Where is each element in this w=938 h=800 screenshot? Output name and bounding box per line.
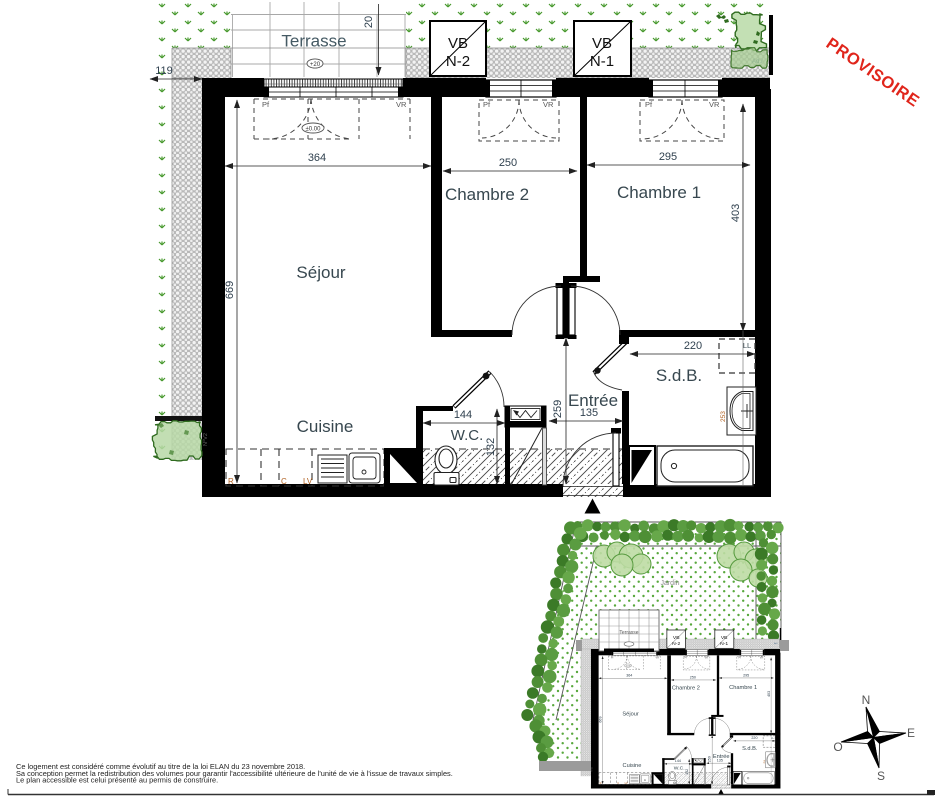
- svg-text:N°V2: N°V2: [203, 433, 209, 446]
- svg-text:Pf: Pf: [645, 100, 653, 109]
- svg-text:O: O: [833, 740, 842, 754]
- svg-text:VR: VR: [709, 100, 720, 109]
- svg-text:Pf: Pf: [483, 100, 491, 109]
- svg-text:Pf: Pf: [262, 100, 270, 109]
- svg-text:135: 135: [580, 407, 598, 419]
- svg-text:20: 20: [363, 16, 375, 28]
- svg-text:364: 364: [308, 152, 326, 164]
- svg-text:N: N: [862, 693, 871, 707]
- svg-text:669: 669: [224, 281, 236, 299]
- svg-text:403: 403: [730, 204, 742, 222]
- svg-text:±0.00: ±0.00: [306, 126, 322, 132]
- svg-text:Séjour: Séjour: [296, 263, 345, 282]
- svg-text:LL: LL: [743, 341, 751, 350]
- svg-text:Le plan accessible est celui p: Le plan accessible est celui présenté au…: [16, 775, 218, 784]
- svg-text:C: C: [281, 477, 287, 486]
- svg-text:W.C.: W.C.: [451, 427, 484, 444]
- svg-text:295: 295: [659, 151, 677, 163]
- svg-text:R: R: [228, 477, 234, 486]
- svg-text:Jardin: Jardin: [660, 580, 679, 587]
- svg-text:LV: LV: [303, 477, 313, 486]
- svg-text:Terrasse: Terrasse: [619, 630, 638, 636]
- svg-text:144: 144: [454, 409, 472, 421]
- svg-text:N-2: N-2: [446, 53, 470, 70]
- svg-text:Cuisine: Cuisine: [297, 417, 354, 436]
- svg-text:VB: VB: [448, 35, 468, 52]
- svg-text:Chambre 2: Chambre 2: [445, 185, 529, 204]
- svg-text:Terrasse: Terrasse: [281, 32, 346, 51]
- svg-text:VB: VB: [592, 35, 612, 52]
- svg-text:S: S: [877, 769, 885, 783]
- svg-text:132: 132: [485, 438, 497, 456]
- svg-text:S.d.B.: S.d.B.: [656, 366, 702, 385]
- svg-text:VR: VR: [396, 100, 407, 109]
- svg-text:259: 259: [552, 400, 564, 418]
- svg-text:250: 250: [499, 157, 517, 169]
- svg-text:N-1: N-1: [590, 53, 614, 70]
- svg-text:+20: +20: [310, 62, 321, 68]
- svg-text:VR: VR: [543, 100, 554, 109]
- svg-text:220: 220: [684, 340, 702, 352]
- svg-text:Chambre 1: Chambre 1: [617, 183, 701, 202]
- svg-text:E: E: [907, 726, 915, 740]
- svg-text:253: 253: [720, 411, 727, 422]
- svg-text:119: 119: [155, 65, 173, 77]
